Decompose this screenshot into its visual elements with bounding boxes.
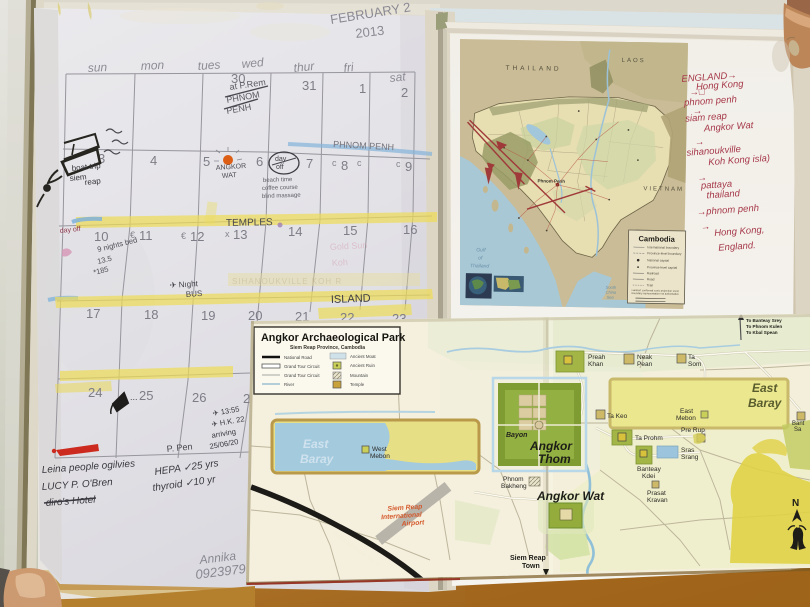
svg-text:Thailand: Thailand (470, 263, 490, 269)
svg-text:Sa: Sa (794, 427, 802, 433)
svg-text:ANGKOR: ANGKOR (216, 163, 247, 172)
svg-text:8: 8 (341, 158, 348, 173)
svg-text:mon: mon (140, 58, 164, 73)
svg-text:Bayon: Bayon (506, 432, 527, 439)
svg-text:Srang: Srang (681, 454, 699, 461)
svg-text:5: 5 (203, 154, 210, 169)
svg-text:Kravan: Kravan (647, 497, 668, 504)
svg-text:Som: Som (688, 361, 701, 368)
svg-text:Phnom Penh: Phnom Penh (537, 178, 565, 183)
svg-text:Province-level capital: Province-level capital (647, 265, 677, 270)
svg-text:day off: day off (59, 226, 81, 235)
svg-text:Banteay: Banteay (637, 466, 662, 473)
svg-text:To Kbal Spean: To Kbal Spean (746, 330, 778, 335)
svg-text:16: 16 (403, 222, 417, 237)
svg-text:FEBRUARY 2: FEBRUARY 2 (329, 0, 412, 27)
svg-text:sun: sun (87, 60, 107, 75)
svg-text:Road: Road (647, 277, 655, 281)
svg-text:24: 24 (88, 385, 102, 400)
svg-text:off: off (276, 164, 284, 171)
svg-text:26: 26 (192, 390, 206, 405)
svg-text:blind massage: blind massage (262, 193, 302, 200)
svg-text:Mebon: Mebon (370, 453, 390, 460)
svg-text:Leina people ogilvies: Leina people ogilvies (41, 459, 135, 476)
svg-text:Kdei: Kdei (642, 473, 655, 480)
svg-text:Cambodia: Cambodia (638, 234, 675, 244)
svg-text:c: c (357, 158, 362, 168)
svg-text:Town: Town (522, 563, 540, 570)
svg-text:Trail: Trail (647, 283, 653, 287)
svg-text:N: N (792, 498, 799, 509)
svg-text:National capital: National capital (647, 258, 669, 262)
svg-text:Gold Sun: Gold Sun (330, 240, 368, 252)
svg-text:31: 31 (302, 78, 316, 93)
svg-text:Sras: Sras (681, 447, 695, 454)
svg-text:Railroad: Railroad (647, 271, 659, 275)
svg-text:c: c (332, 158, 337, 168)
svg-text:Hong Kong,: Hong Kong, (714, 224, 765, 238)
svg-text:Grand Tour Circuit: Grand Tour Circuit (284, 373, 320, 378)
svg-text:12: 12 (190, 229, 204, 244)
svg-text:4: 4 (150, 153, 157, 168)
svg-text:Preah: Preah (588, 354, 606, 361)
svg-text:thur: thur (293, 59, 316, 75)
svg-text:England.: England. (718, 240, 756, 254)
svg-text:BUS: BUS (186, 289, 203, 299)
svg-text:€: € (181, 231, 186, 241)
svg-text:x: x (225, 229, 230, 239)
svg-text:PHNOM PENH: PHNOM PENH (333, 139, 394, 152)
svg-text:Angkor Wat: Angkor Wat (536, 489, 605, 503)
svg-text:East: East (752, 381, 778, 395)
svg-text:thyroid ✓10 yr: thyroid ✓10 yr (152, 474, 217, 494)
svg-text:Koh: Koh (332, 257, 349, 268)
svg-text:Angkor Wat: Angkor Wat (703, 120, 754, 135)
svg-text:1: 1 (359, 81, 366, 96)
svg-text:17: 17 (86, 306, 100, 321)
svg-text:Angkor: Angkor (529, 439, 573, 453)
svg-text:13: 13 (233, 227, 247, 242)
svg-text:West: West (372, 446, 387, 453)
svg-text:15: 15 (343, 223, 357, 238)
svg-text:c: c (396, 159, 401, 169)
svg-text:Grand Tour Circuit: Grand Tour Circuit (284, 364, 320, 369)
svg-text:SIHANOUKVILLE KOH R: SIHANOUKVILLE KOH R (232, 277, 342, 286)
svg-text:14: 14 (288, 224, 302, 239)
svg-text:boat trip: boat trip (71, 161, 101, 173)
svg-text:River: River (284, 382, 295, 387)
svg-text:6: 6 (256, 154, 263, 169)
svg-text:18: 18 (144, 307, 158, 322)
svg-text:Mountain: Mountain (350, 373, 369, 378)
svg-text:International boundary: International boundary (647, 245, 679, 250)
svg-text:Temple: Temple (350, 382, 365, 387)
svg-text:wed: wed (241, 55, 264, 71)
svg-text:Ancient Ruin: Ancient Ruin (350, 363, 375, 368)
svg-text:...: ... (130, 392, 138, 402)
svg-text:National Road: National Road (284, 355, 312, 360)
svg-text:Khan: Khan (588, 361, 604, 368)
svg-text:13.5: 13.5 (96, 254, 112, 266)
svg-text:9: 9 (405, 159, 412, 174)
svg-text:beach time: beach time (263, 177, 293, 184)
svg-text:Ta Prohm: Ta Prohm (635, 435, 663, 442)
svg-text:Baray: Baray (748, 396, 783, 410)
svg-text:tues: tues (197, 57, 221, 73)
svg-text:Baray: Baray (300, 452, 335, 466)
svg-text:✈ Nıght: ✈ Nıght (170, 279, 199, 290)
svg-text:VIETNAM: VIETNAM (643, 186, 684, 193)
svg-text:Angkor Archaeological Park: Angkor Archaeological Park (261, 332, 406, 344)
svg-text:Gulf: Gulf (476, 247, 486, 253)
svg-text:thailand: thailand (706, 188, 741, 201)
svg-text:Bakheng: Bakheng (501, 483, 527, 490)
svg-text:phnom penh: phnom penh (683, 94, 737, 109)
svg-text:coffee course: coffee course (262, 185, 299, 192)
svg-text:of: of (478, 255, 483, 261)
svg-text:East: East (680, 408, 693, 415)
svg-text:Ta: Ta (688, 354, 695, 361)
svg-text:Sea: Sea (606, 295, 614, 300)
svg-text:Mebon: Mebon (676, 415, 696, 422)
svg-text:Thom: Thom (538, 452, 571, 466)
svg-text:P. Pen: P. Pen (166, 441, 193, 454)
svg-text:Pre Rup: Pre Rup (681, 427, 705, 434)
svg-text:Pean: Pean (637, 361, 653, 368)
svg-text:ISLAND: ISLAND (331, 293, 371, 306)
svg-text:Siem Reap Province, Cambodia: Siem Reap Province, Cambodia (290, 345, 365, 351)
svg-text:2: 2 (401, 85, 408, 100)
svg-text:Siem Reap: Siem Reap (510, 555, 546, 562)
svg-text:sat: sat (389, 69, 407, 85)
svg-text:7: 7 (306, 156, 313, 171)
svg-text:TEMPLES: TEMPLES (226, 217, 273, 229)
svg-text:Ancient Moat: Ancient Moat (350, 354, 376, 359)
svg-text:THAILAND: THAILAND (505, 65, 561, 73)
svg-text:Neak: Neak (637, 354, 653, 361)
svg-text:*185: *185 (92, 264, 109, 276)
svg-text:19: 19 (201, 308, 215, 323)
svg-text:East: East (303, 437, 329, 451)
svg-text:To Phnom Kulen: To Phnom Kulen (746, 324, 782, 329)
svg-text:reap: reap (84, 176, 101, 187)
svg-text:To Banteay Srey: To Banteay Srey (746, 318, 782, 323)
svg-text:Prasat: Prasat (647, 490, 666, 497)
svg-text:2013: 2013 (355, 23, 386, 41)
svg-text:25: 25 (139, 388, 153, 403)
svg-text:LAOS: LAOS (622, 58, 646, 64)
svg-text:LUCY P. O'Bren: LUCY P. O'Bren (41, 477, 113, 493)
svg-text:→phnom penh: →phnom penh (696, 203, 759, 218)
svg-text:WAT: WAT (222, 172, 238, 180)
svg-text:Phnom: Phnom (503, 476, 524, 483)
svg-text:fri: fri (343, 60, 355, 75)
svg-text:→: → (700, 221, 710, 233)
svg-text:Province-level boundary: Province-level boundary (647, 251, 682, 256)
svg-text:Ta Keo: Ta Keo (607, 413, 628, 420)
svg-text:11: 11 (139, 228, 153, 243)
